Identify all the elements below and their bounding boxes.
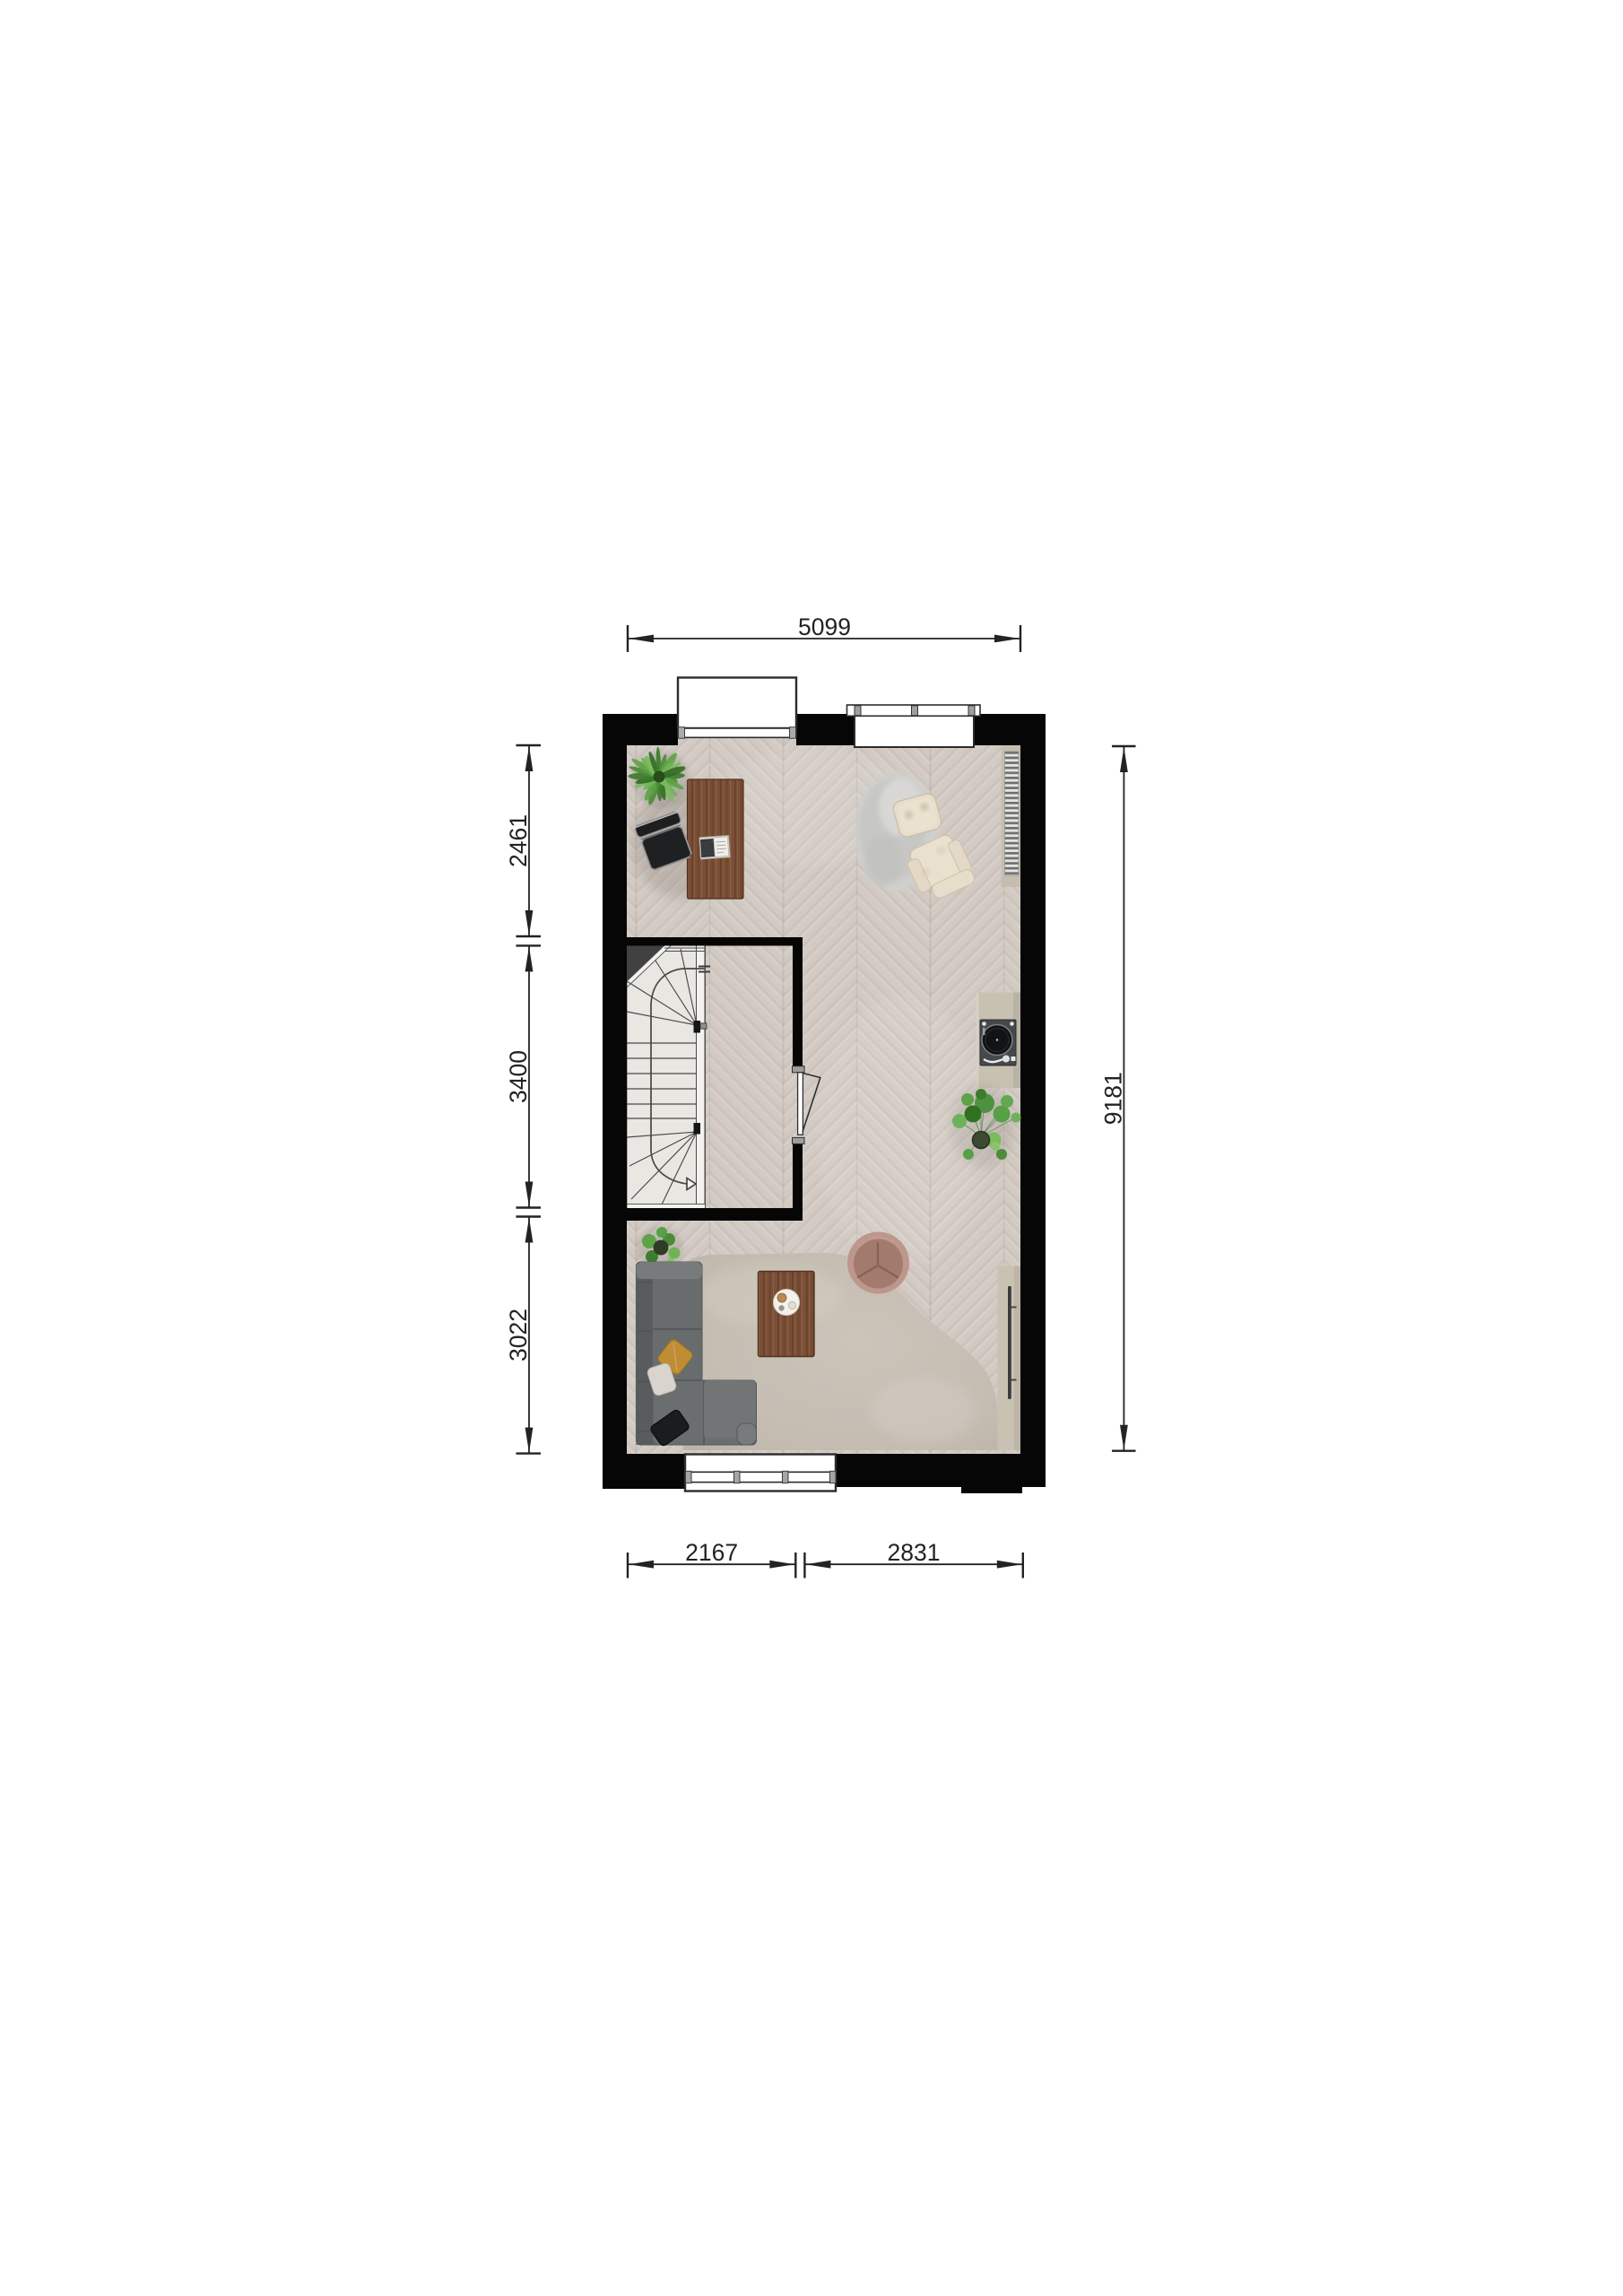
svg-text:2167: 2167 [685,1539,738,1566]
svg-text:3022: 3022 [505,1309,532,1361]
svg-text:3400: 3400 [505,1050,532,1103]
svg-text:2831: 2831 [888,1539,941,1566]
svg-text:9181: 9181 [1099,1072,1126,1125]
svg-text:5099: 5099 [798,613,851,640]
svg-text:2461: 2461 [505,814,532,867]
